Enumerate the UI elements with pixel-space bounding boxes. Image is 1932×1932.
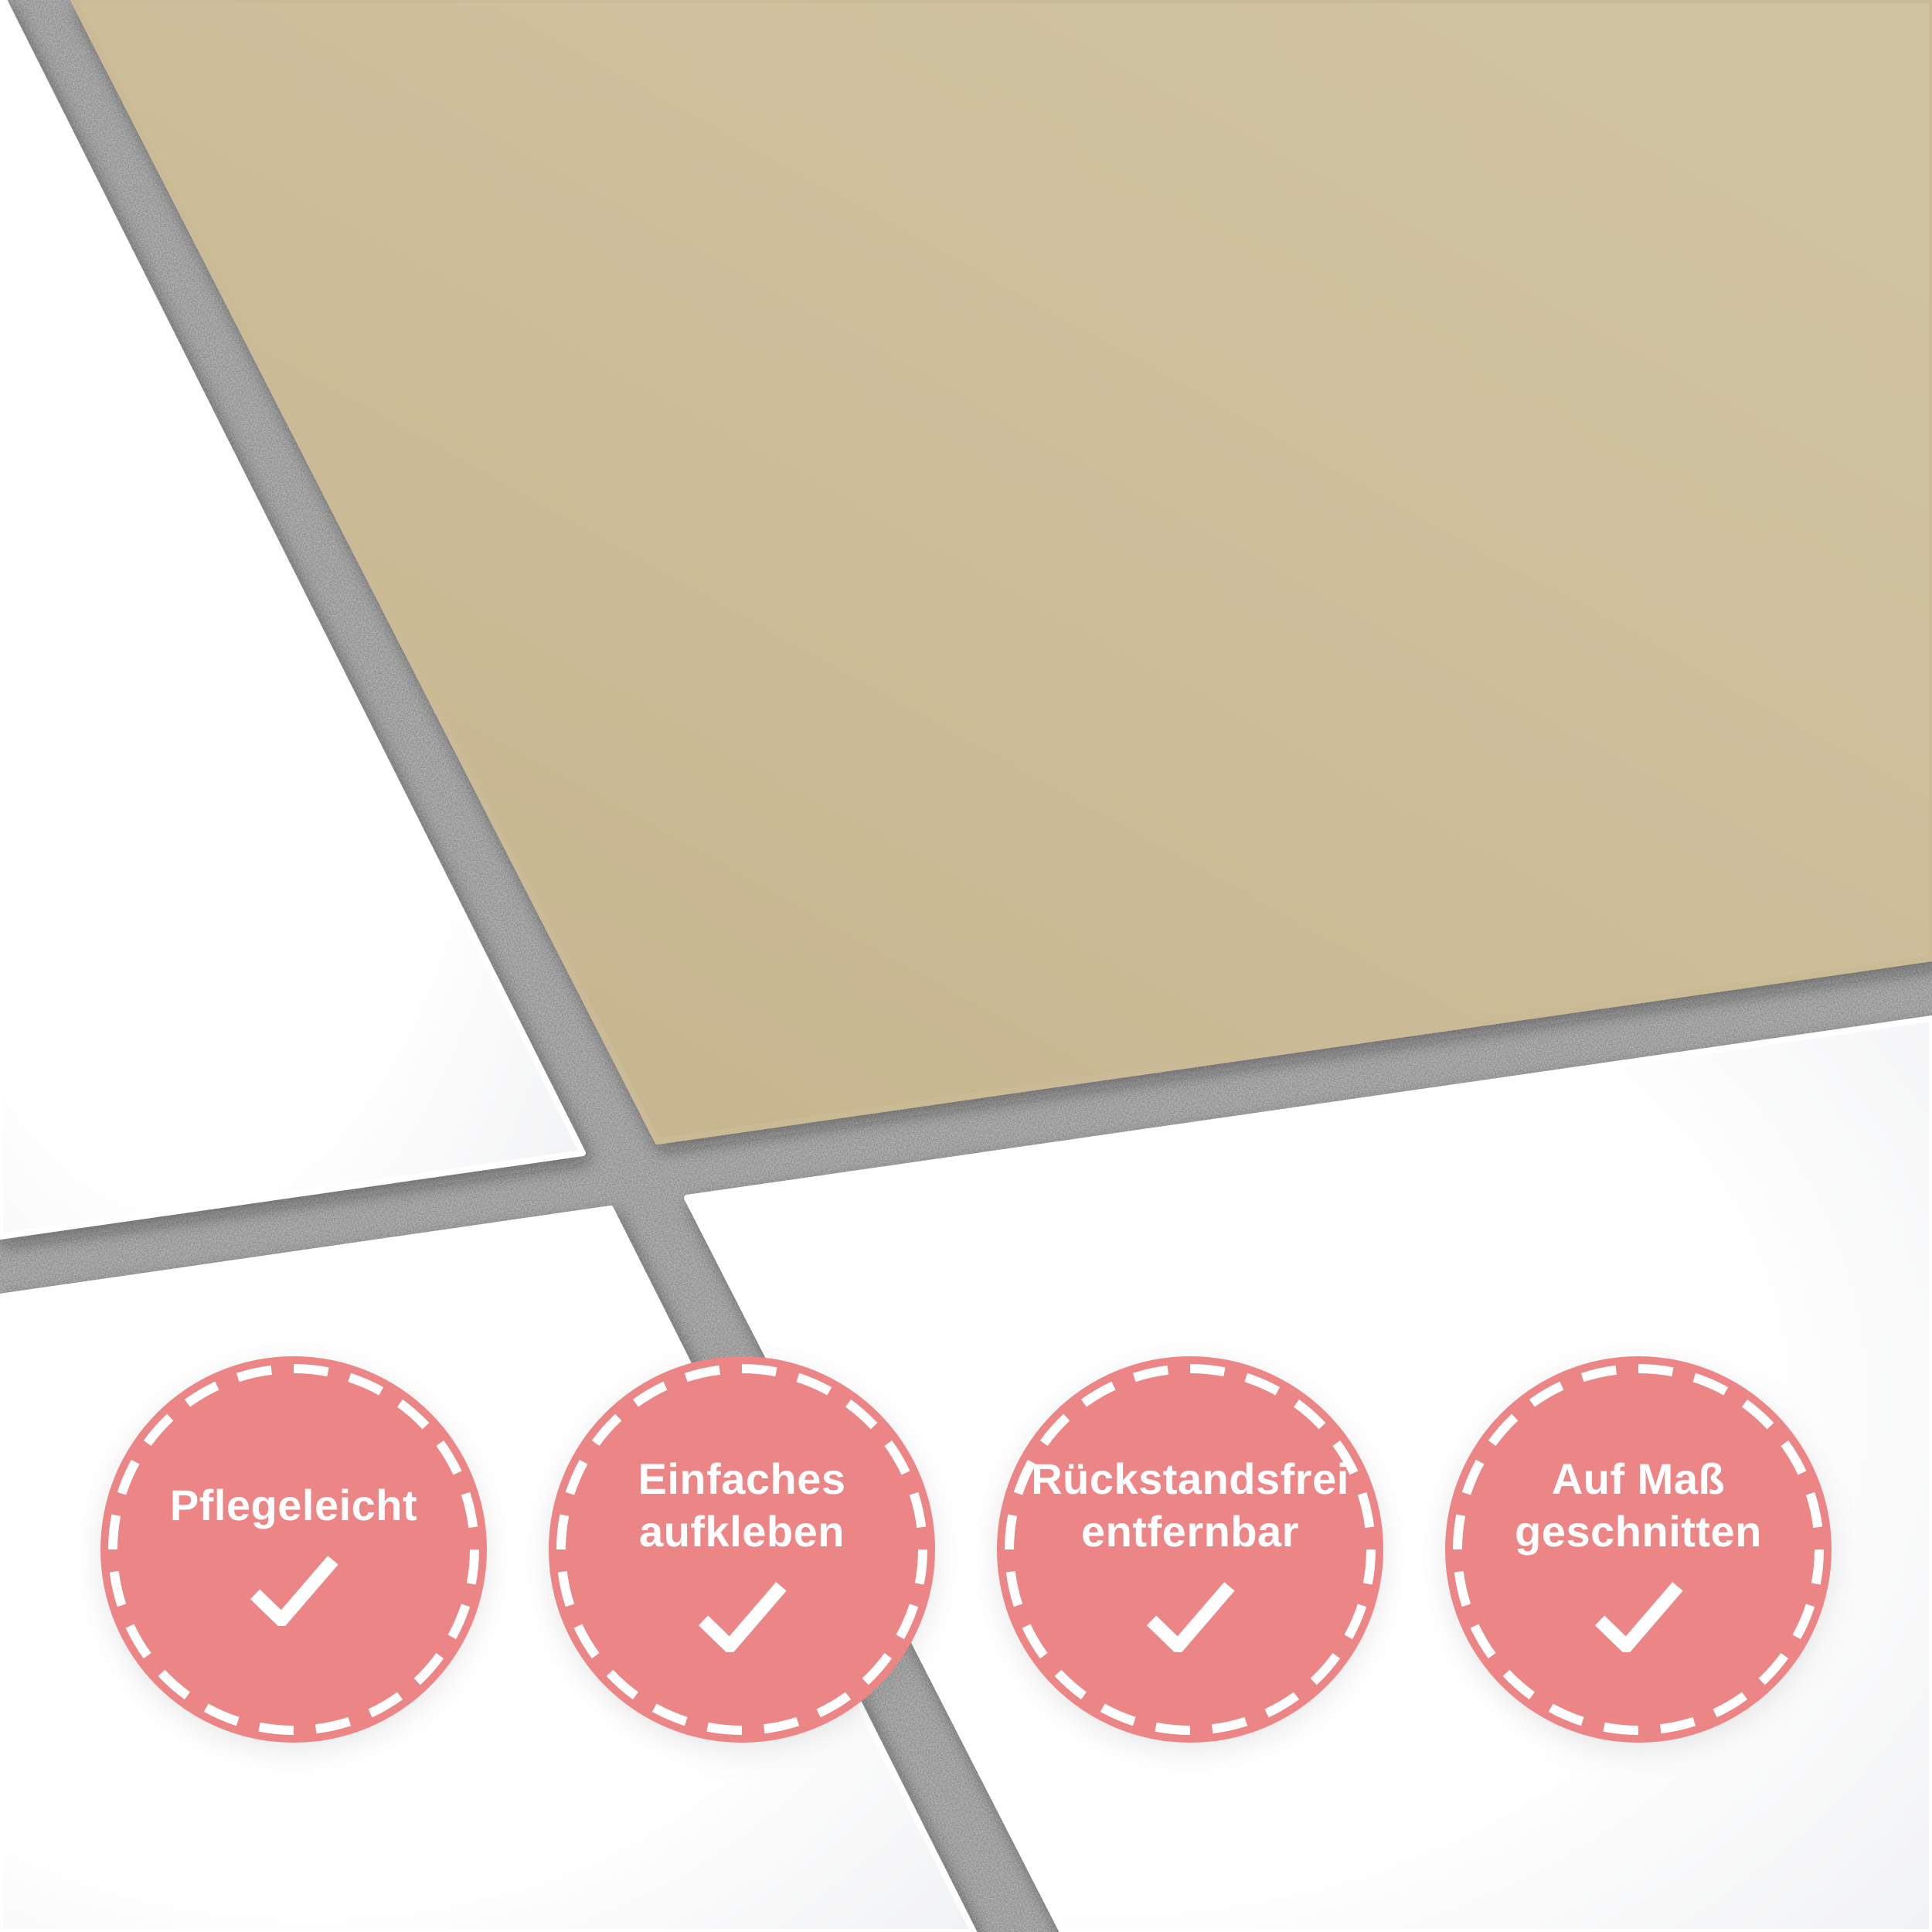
check-icon bbox=[248, 1553, 339, 1626]
check-icon bbox=[1145, 1580, 1236, 1652]
badge-label-line1: Pflegeleicht bbox=[170, 1479, 417, 1532]
feature-badge-rueckstandsfrei-entfernbar: Rückstandsfrei entfernbar bbox=[997, 1356, 1383, 1743]
product-banner: Pflegeleicht Einfaches aufkleben Rücksta… bbox=[0, 0, 1932, 1932]
check-icon bbox=[1593, 1580, 1684, 1652]
badge-label-line1: Einfaches bbox=[638, 1453, 845, 1505]
badge-label-line2: aufkleben bbox=[639, 1505, 845, 1558]
check-icon bbox=[696, 1580, 787, 1652]
feature-badge-pflegeleicht: Pflegeleicht bbox=[100, 1356, 487, 1743]
badge-content: Einfaches aufkleben bbox=[549, 1356, 935, 1743]
badge-content: Rückstandsfrei entfernbar bbox=[997, 1356, 1383, 1743]
badge-content: Pflegeleicht bbox=[100, 1356, 487, 1743]
badge-label-line2: geschnitten bbox=[1515, 1505, 1762, 1558]
badge-label-line1: Auf Maß bbox=[1552, 1453, 1725, 1505]
badge-content: Auf Maß geschnitten bbox=[1445, 1356, 1832, 1743]
feature-badge-einfaches-aufkleben: Einfaches aufkleben bbox=[549, 1356, 935, 1743]
badge-label-line1: Rückstandsfrei bbox=[1031, 1453, 1349, 1505]
badge-label-line2: entfernbar bbox=[1081, 1505, 1299, 1558]
feature-badge-auf-mass-geschnitten: Auf Maß geschnitten bbox=[1445, 1356, 1832, 1743]
